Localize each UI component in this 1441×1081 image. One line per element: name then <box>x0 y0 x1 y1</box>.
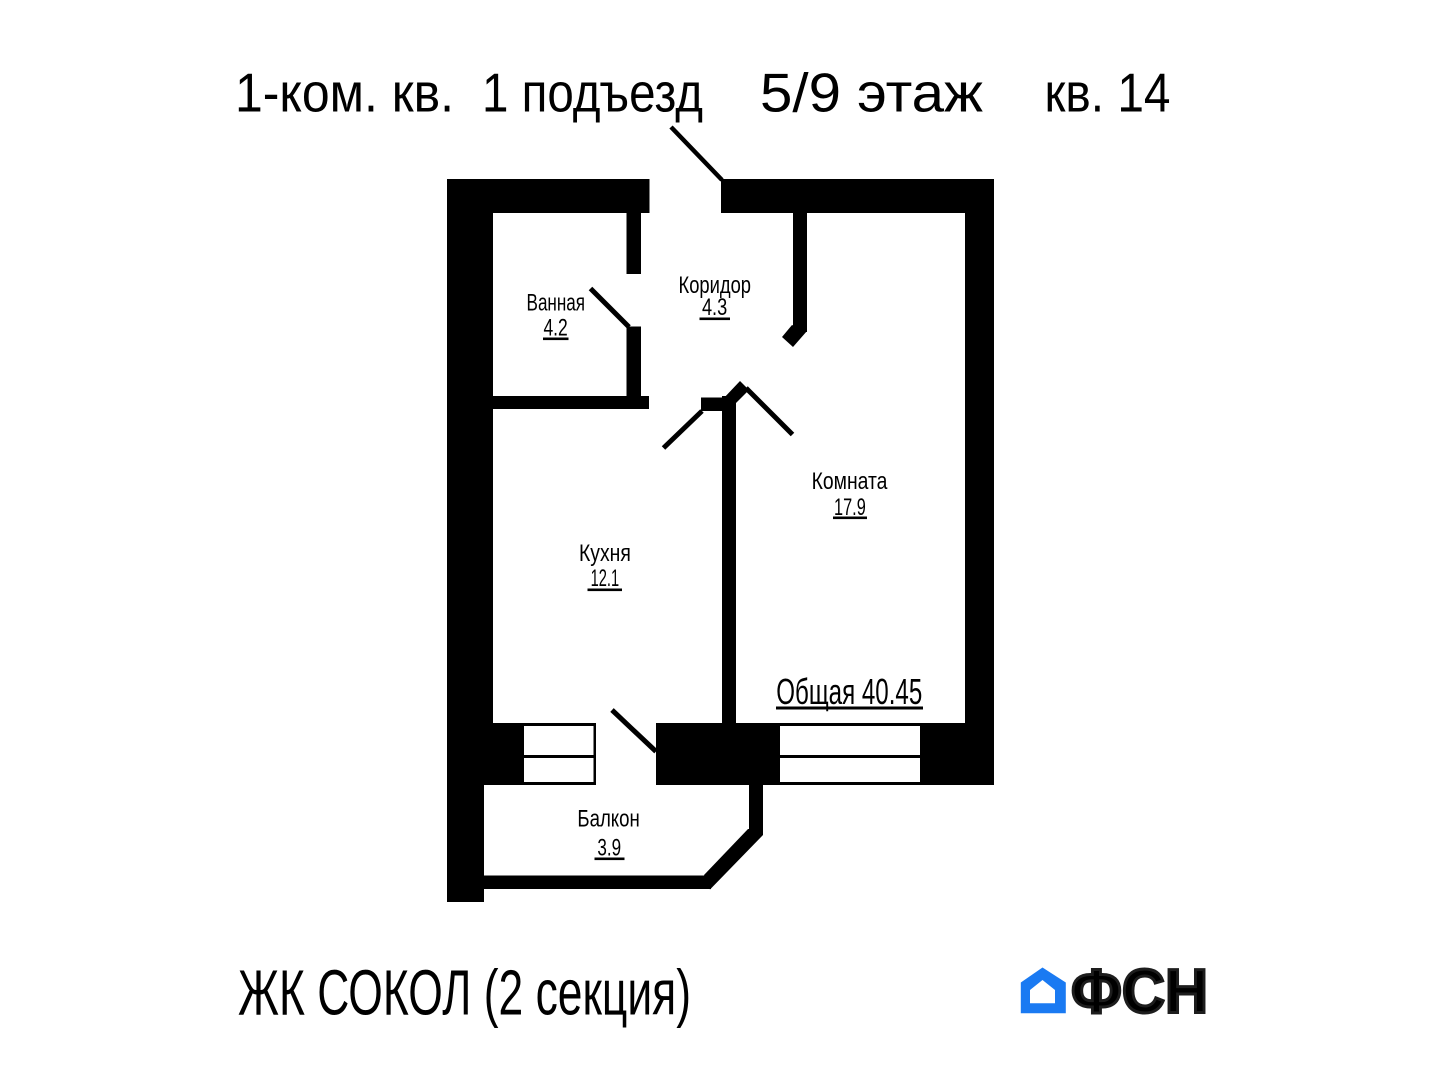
svg-text:кв. 14: кв. 14 <box>1045 62 1171 124</box>
svg-text:Комната: Комната <box>812 468 888 495</box>
svg-text:4.2: 4.2 <box>543 314 567 341</box>
svg-text:Ванная: Ванная <box>527 290 586 317</box>
svg-text:Балкон: Балкон <box>577 806 639 833</box>
svg-text:ЖК СОКОЛ (2 секция): ЖК СОКОЛ (2 секция) <box>238 957 691 1029</box>
svg-text:1-ком. кв.: 1-ком. кв. <box>235 62 454 124</box>
svg-text:Кухня: Кухня <box>579 540 631 567</box>
svg-text:5/9 этаж: 5/9 этаж <box>760 62 983 124</box>
svg-text:Общая 40.45: Общая 40.45 <box>776 671 922 712</box>
svg-text:1 подъезд: 1 подъезд <box>482 62 703 124</box>
svg-text:ФСН: ФСН <box>1071 958 1208 1027</box>
svg-text:12.1: 12.1 <box>591 565 620 592</box>
svg-text:4.3: 4.3 <box>702 294 727 321</box>
svg-text:3.9: 3.9 <box>597 835 621 862</box>
